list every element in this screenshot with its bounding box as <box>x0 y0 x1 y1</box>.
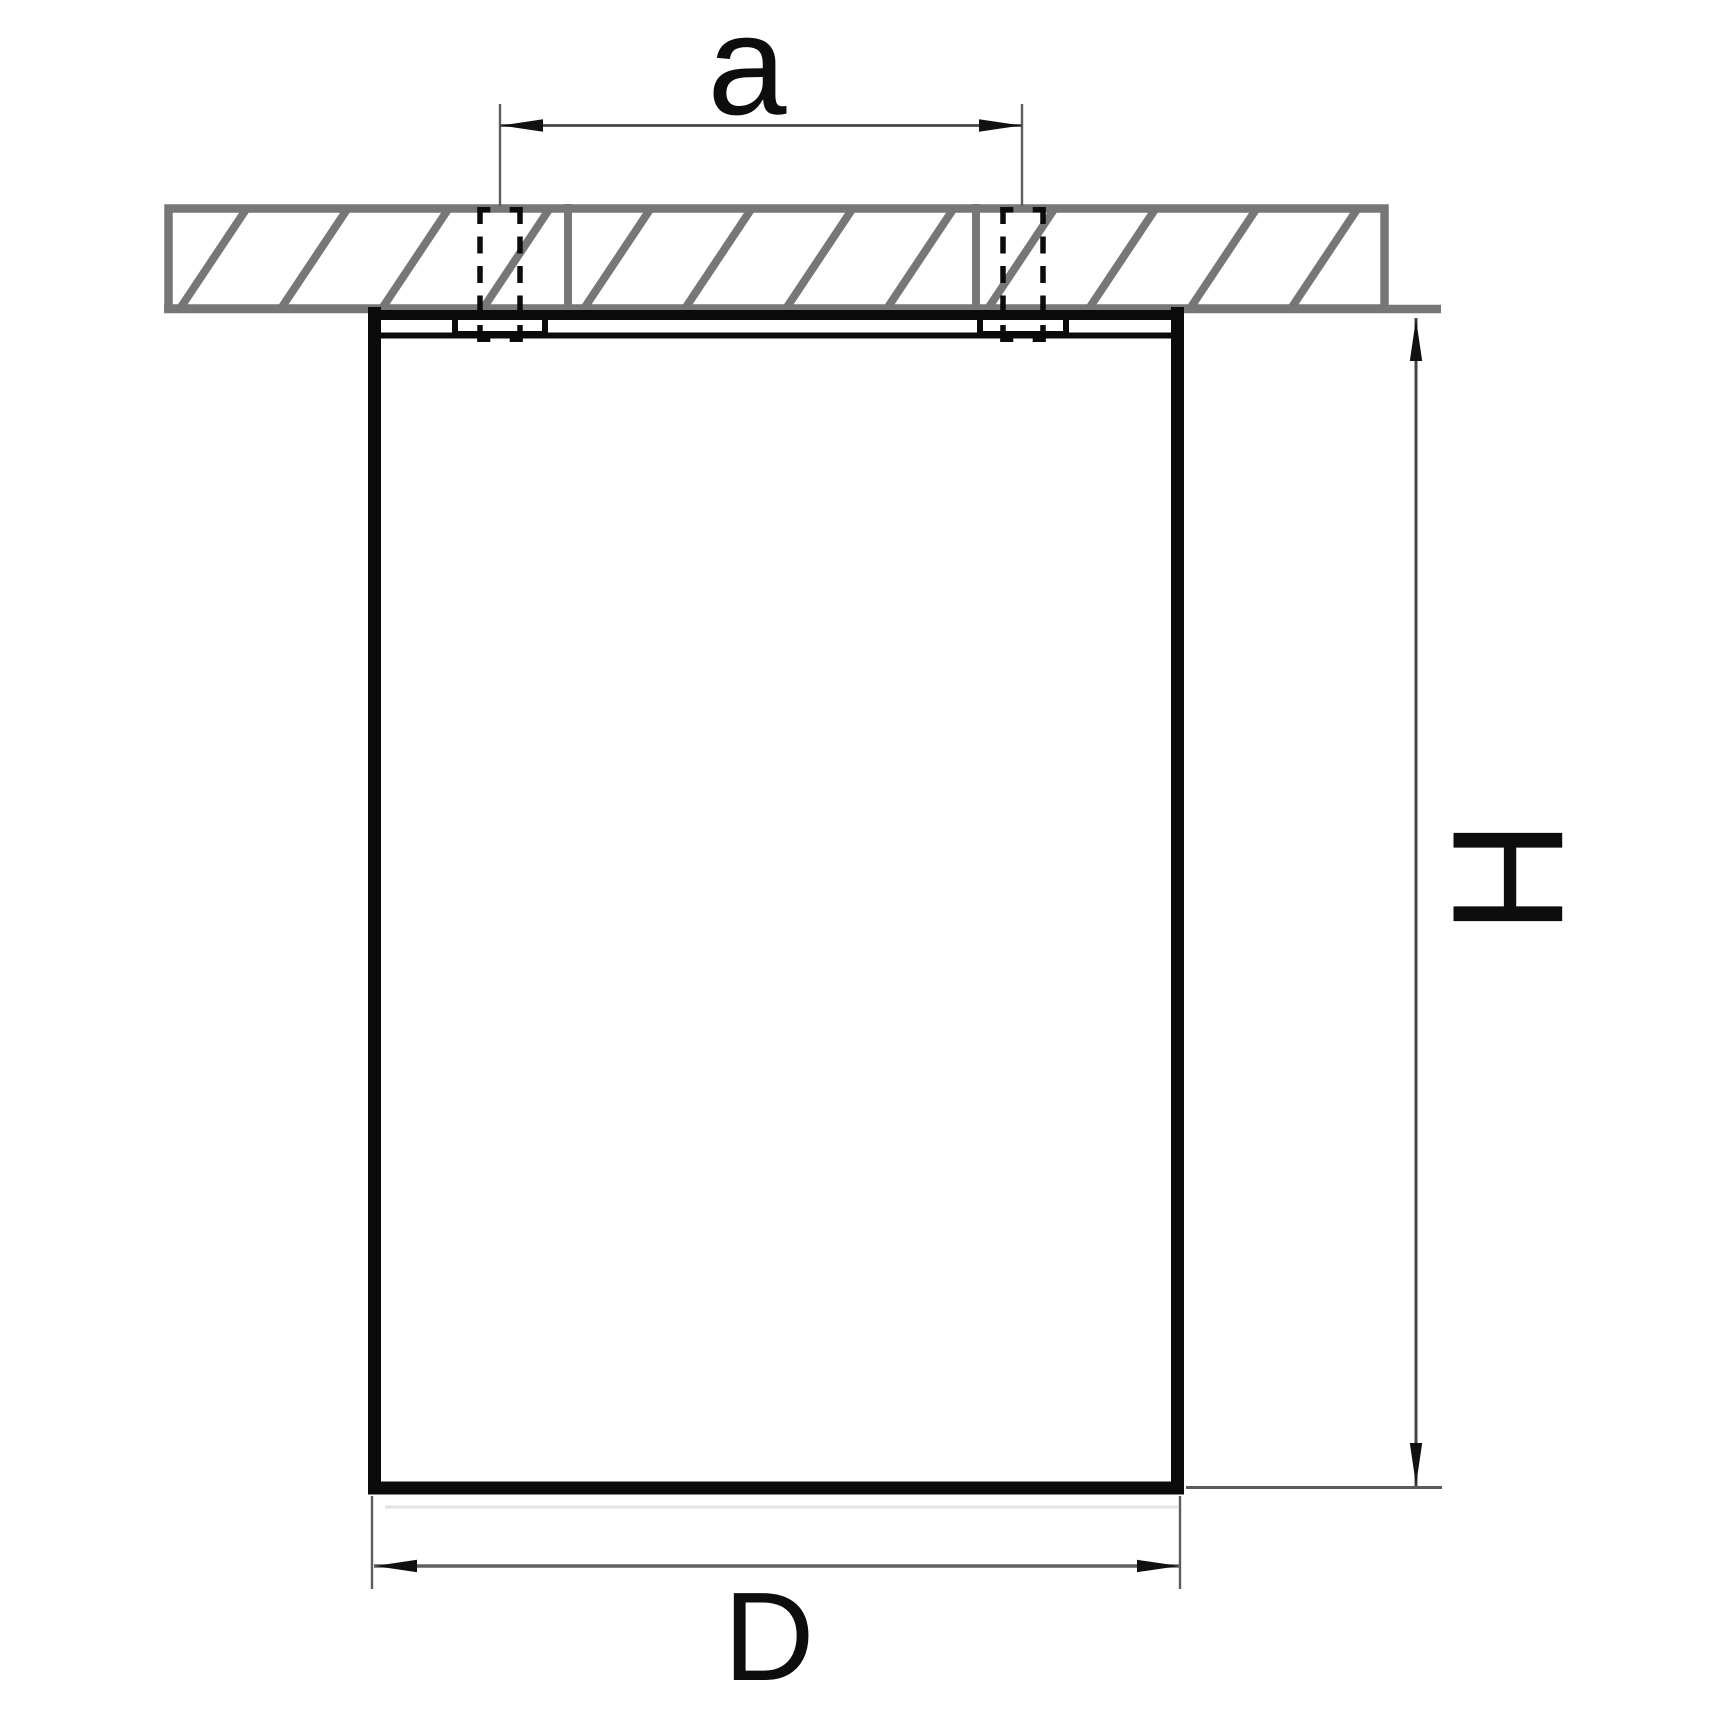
svg-text:D: D <box>724 1566 815 1707</box>
svg-text:H: H <box>1420 820 1596 934</box>
svg-text:a: a <box>708 0 787 145</box>
